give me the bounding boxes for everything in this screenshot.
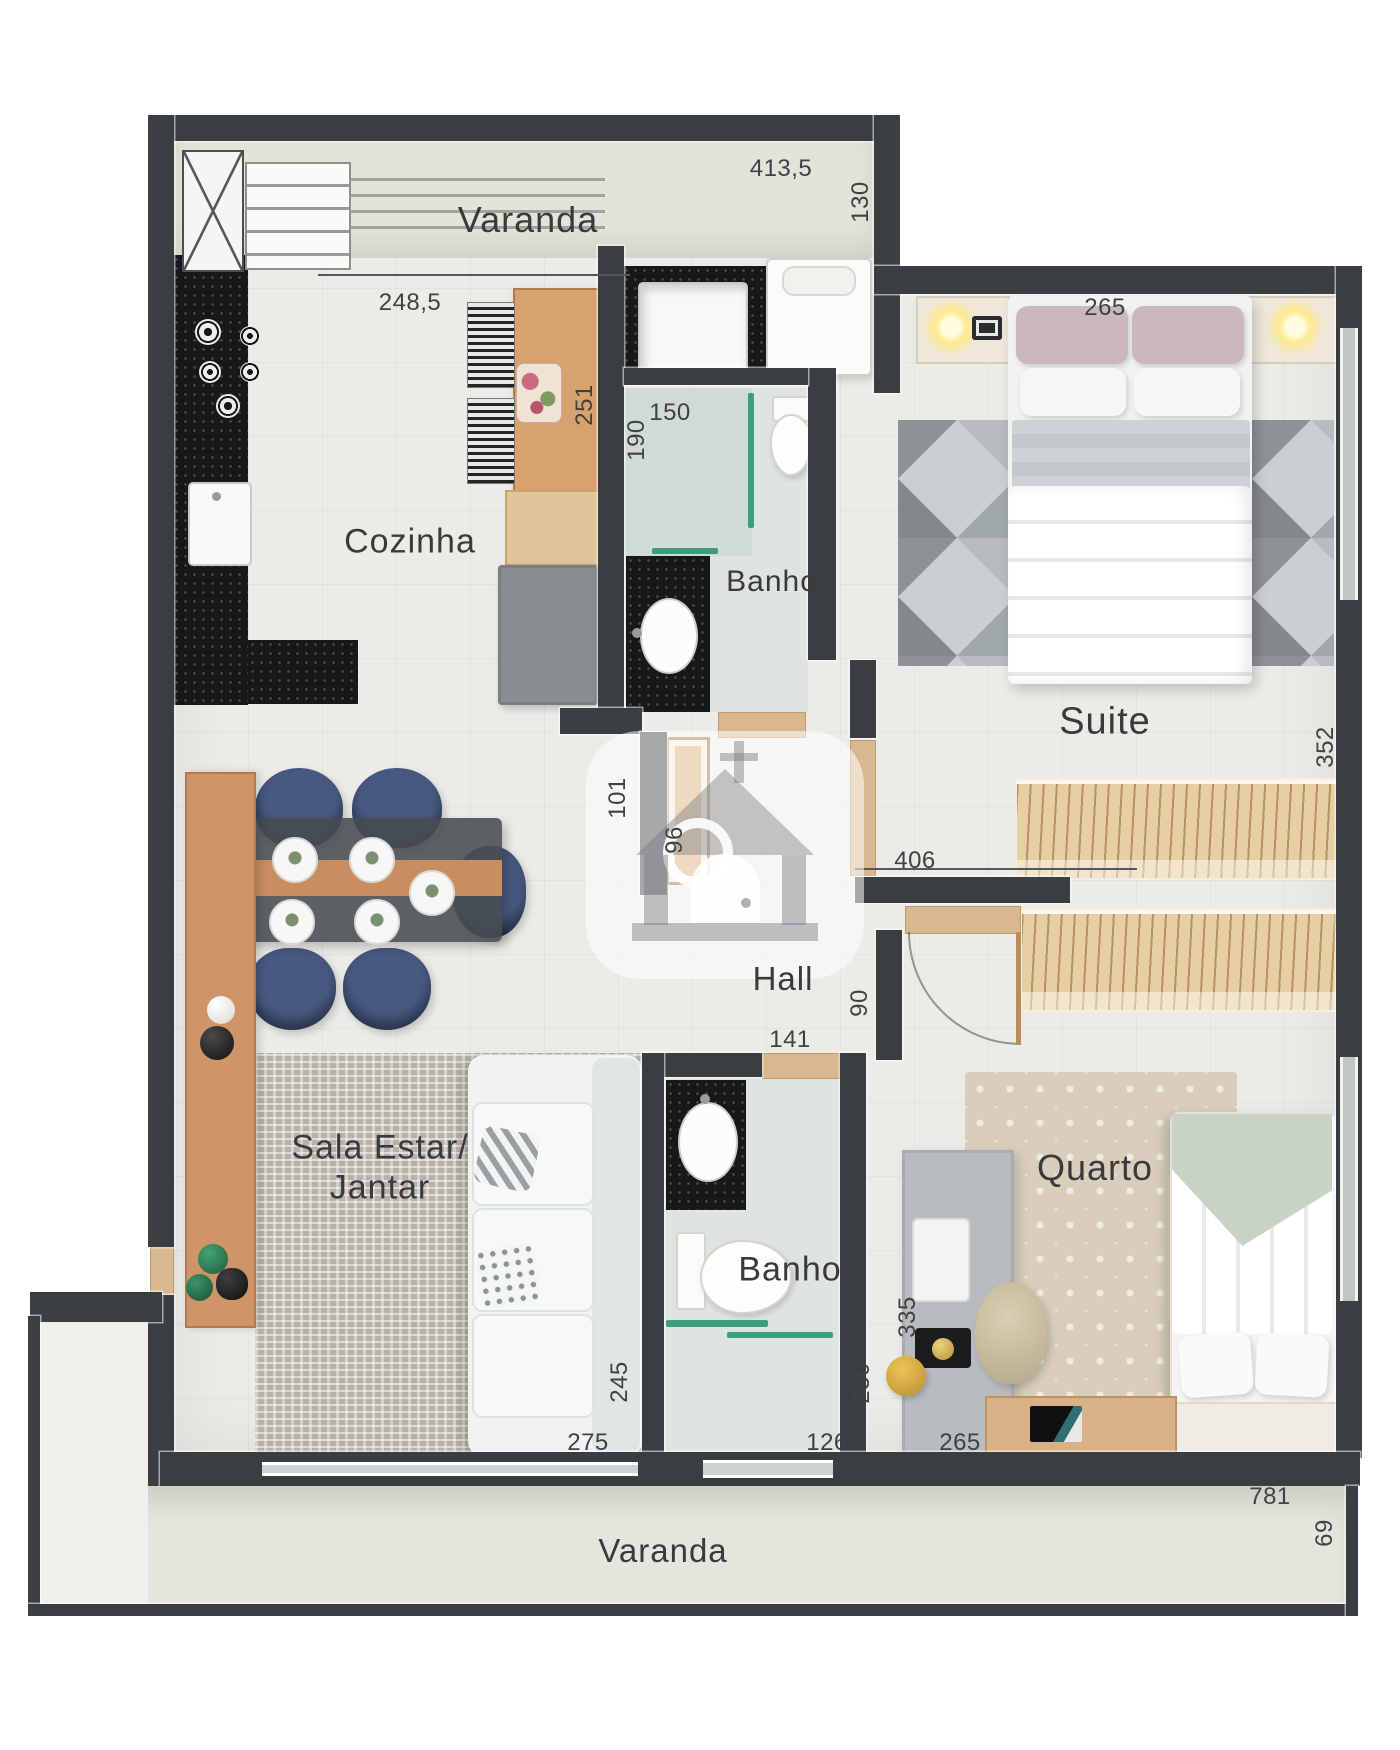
dimension-label: 352 (1312, 726, 1340, 768)
dimension-label: 248,5 (379, 289, 442, 317)
cooktop-burner (240, 362, 260, 382)
quarto-door-swing-arc (907, 932, 1023, 1048)
suite-pillow-white (1134, 368, 1240, 416)
banho-bottom-sink (678, 1102, 738, 1182)
kitchen-counter-corner (248, 640, 358, 704)
wall-left-upper (148, 115, 174, 1247)
varanda-rail-left (28, 1316, 40, 1616)
bench-cushion (467, 398, 515, 484)
dimension-label: 69 (1311, 1519, 1339, 1547)
dimension-line (318, 274, 630, 276)
desk-laptop (912, 1218, 970, 1302)
varanda-wing-floor (40, 1322, 148, 1608)
banho-bottom-window (703, 1460, 833, 1478)
room-label-cozinha: Cozinha (344, 523, 476, 562)
dimension-label: 275 (567, 1429, 609, 1457)
plate (409, 870, 455, 916)
kitchen-shelf (505, 490, 601, 566)
dimension-label: 90 (846, 989, 874, 1017)
dimension-label: 230 (848, 1362, 876, 1404)
banho-top-faucet (632, 628, 642, 638)
service-shaft-x (182, 150, 244, 272)
room-label-banho-bottom: Banho (738, 1251, 841, 1290)
varanda-window-grill (245, 162, 351, 270)
plate (269, 899, 315, 945)
quarto-chair (975, 1282, 1047, 1384)
room-label-sala-line1: Sala Estar/ (291, 1129, 468, 1168)
quarto-headboard (1168, 1402, 1340, 1458)
house-logo-icon (586, 731, 864, 979)
wall-varanda-right (874, 115, 900, 393)
wall-closet-divider (855, 877, 1070, 903)
cooktop-burner (240, 326, 260, 346)
dimension-label: 413,5 (750, 155, 813, 183)
room-label-varanda-bottom: Varanda (598, 1532, 727, 1570)
wall-laundry-divider (624, 368, 808, 385)
wall-banho-bottom-left (642, 1053, 664, 1486)
plate (272, 837, 318, 883)
room-label-suite: Suite (1059, 701, 1151, 744)
alarm-clock (972, 316, 1002, 340)
dimension-label: 101 (604, 777, 632, 819)
wall-quarto-left (876, 930, 902, 1060)
dimension-label: 406 (894, 847, 936, 875)
room-label-hall: Hall (753, 960, 814, 998)
kitchen-cabinet (498, 565, 598, 705)
dimension-label: 781 (1249, 1483, 1291, 1511)
plate (354, 899, 400, 945)
quarto-pillow (1254, 1332, 1329, 1398)
dining-chair (343, 948, 431, 1030)
dimension-label: 96 (661, 826, 689, 854)
bench-cushion (467, 302, 515, 388)
suite-pillow-white (1020, 368, 1126, 416)
dimension-label: 265 (939, 1429, 981, 1457)
dimension-label: 251 (571, 384, 599, 426)
dimension-label: 130 (847, 181, 875, 223)
shower-glass (727, 1332, 833, 1338)
dimension-label: 190 (623, 419, 651, 461)
wall-varanda-wing-stub (30, 1292, 162, 1322)
varanda-rail-right (1346, 1486, 1358, 1616)
table-floral-cushion (516, 363, 562, 423)
dimension-label: 265 (1084, 294, 1126, 322)
quarto-window (1340, 1057, 1358, 1301)
shower-glass (748, 393, 754, 528)
cooktop-burner (199, 361, 221, 383)
wall-suite-top (874, 266, 1360, 294)
decor-vase-black (200, 1026, 234, 1060)
quarto-tv (1030, 1406, 1082, 1442)
banho-bottom-door-threshold (762, 1053, 840, 1079)
varanda-wing-door-threshold (150, 1247, 174, 1297)
room-label-banho-top: Banho (726, 565, 818, 599)
dimension-label: 150 (649, 399, 691, 427)
decor-vase-green (186, 1274, 213, 1301)
desk-lamp-gold (932, 1338, 954, 1360)
quarto-door-threshold (905, 906, 1021, 934)
quarto-door-leaf (1016, 932, 1021, 1044)
sofa-pillow-striped (473, 1125, 542, 1194)
decor-vase-white (207, 996, 235, 1024)
bedside-lamp (1266, 298, 1324, 356)
washing-machine-lid (782, 266, 856, 296)
banho-bottom-faucet (700, 1094, 710, 1104)
cooktop-burner (216, 394, 240, 418)
room-label-sala-line2: Jantar (330, 1169, 431, 1208)
banho-top-sink (640, 598, 698, 674)
wall-top (148, 115, 900, 141)
quarto-pillow (1178, 1332, 1254, 1399)
kitchen-sink-faucet (212, 492, 221, 501)
suite-wardrobe (1015, 778, 1341, 880)
wall-banho-bottom-right (840, 1053, 866, 1486)
decor-vase-dark (216, 1268, 248, 1300)
shower-glass (666, 1320, 768, 1327)
wall-banho-top-left (598, 246, 624, 711)
dimension-label: 245 (606, 1361, 634, 1403)
suite-duvet (1008, 486, 1252, 684)
suite-window (1340, 328, 1358, 600)
room-label-varanda-top: Varanda (458, 199, 598, 241)
shower-glass (652, 548, 718, 554)
stool-yellow (886, 1356, 926, 1396)
quarto-wardrobe (1020, 908, 1342, 1012)
suite-pillow-pink (1132, 306, 1244, 364)
dimension-label: 126 (806, 1429, 848, 1457)
outside-mask (900, 96, 1400, 266)
sofa-pillow-dotted (474, 1242, 542, 1310)
sala-sliding-door (262, 1462, 638, 1476)
cooktop-burner (195, 319, 221, 345)
wall-banho-top-right (808, 368, 836, 660)
room-label-quarto: Quarto (1037, 1147, 1153, 1189)
wall-hall-stub (850, 660, 876, 738)
varanda-rail-bottom (28, 1604, 1358, 1616)
dimension-label: 335 (894, 1296, 922, 1338)
plate (349, 837, 395, 883)
dimension-label: 141 (769, 1026, 811, 1054)
sofa-cushion (472, 1314, 594, 1418)
dining-chair (248, 948, 336, 1030)
laundry-sink (638, 282, 748, 374)
floor-plan: Varanda Cozinha Banho Suite Hall Sala Es… (0, 0, 1400, 1750)
